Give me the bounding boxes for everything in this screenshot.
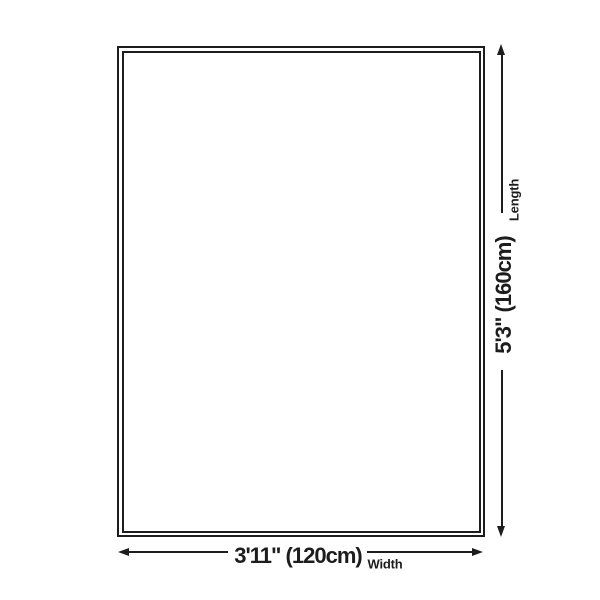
arrow-down-icon bbox=[497, 526, 505, 537]
length-value: 5'3" (160cm) bbox=[493, 236, 515, 353]
length-axis-label: Length bbox=[508, 179, 521, 221]
length-dimension-line-upper bbox=[501, 54, 503, 213]
width-dimension-line-left bbox=[129, 551, 228, 553]
length-dimension-line-lower bbox=[501, 370, 503, 527]
blanket-inner-outline bbox=[122, 51, 481, 533]
width-dimension-line-right bbox=[367, 551, 472, 553]
arrow-left-icon bbox=[118, 548, 129, 556]
size-diagram: Length 5'3" (160cm) 3'11" (120cm) Width bbox=[0, 0, 600, 600]
blanket-outline bbox=[117, 46, 485, 537]
width-value: 3'11" (120cm) bbox=[234, 545, 361, 567]
width-axis-label: Width bbox=[368, 558, 403, 571]
arrow-right-icon bbox=[472, 548, 483, 556]
